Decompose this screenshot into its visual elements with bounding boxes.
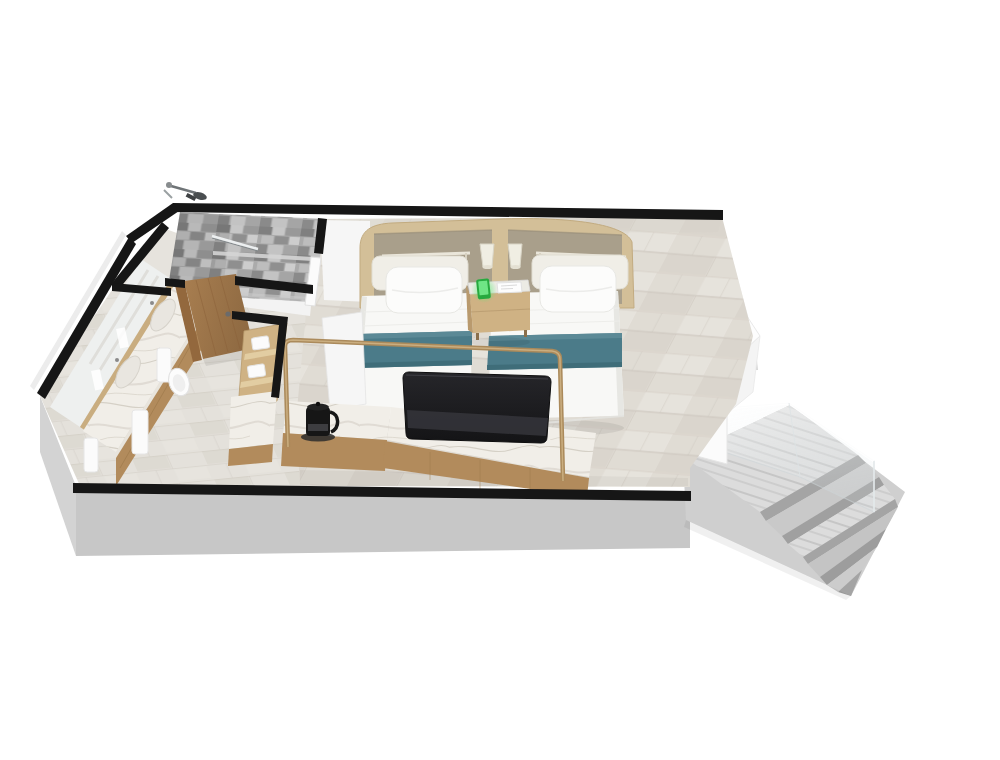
tv [403, 372, 551, 443]
faucet-left [150, 301, 154, 305]
faucet-right [115, 358, 119, 362]
control-panel [497, 282, 522, 293]
floorplan-render [0, 0, 1000, 760]
phone-dock [471, 277, 497, 303]
console-back-panel [322, 312, 366, 410]
floorplan-canvas [0, 0, 1000, 760]
door-handle [225, 311, 230, 316]
